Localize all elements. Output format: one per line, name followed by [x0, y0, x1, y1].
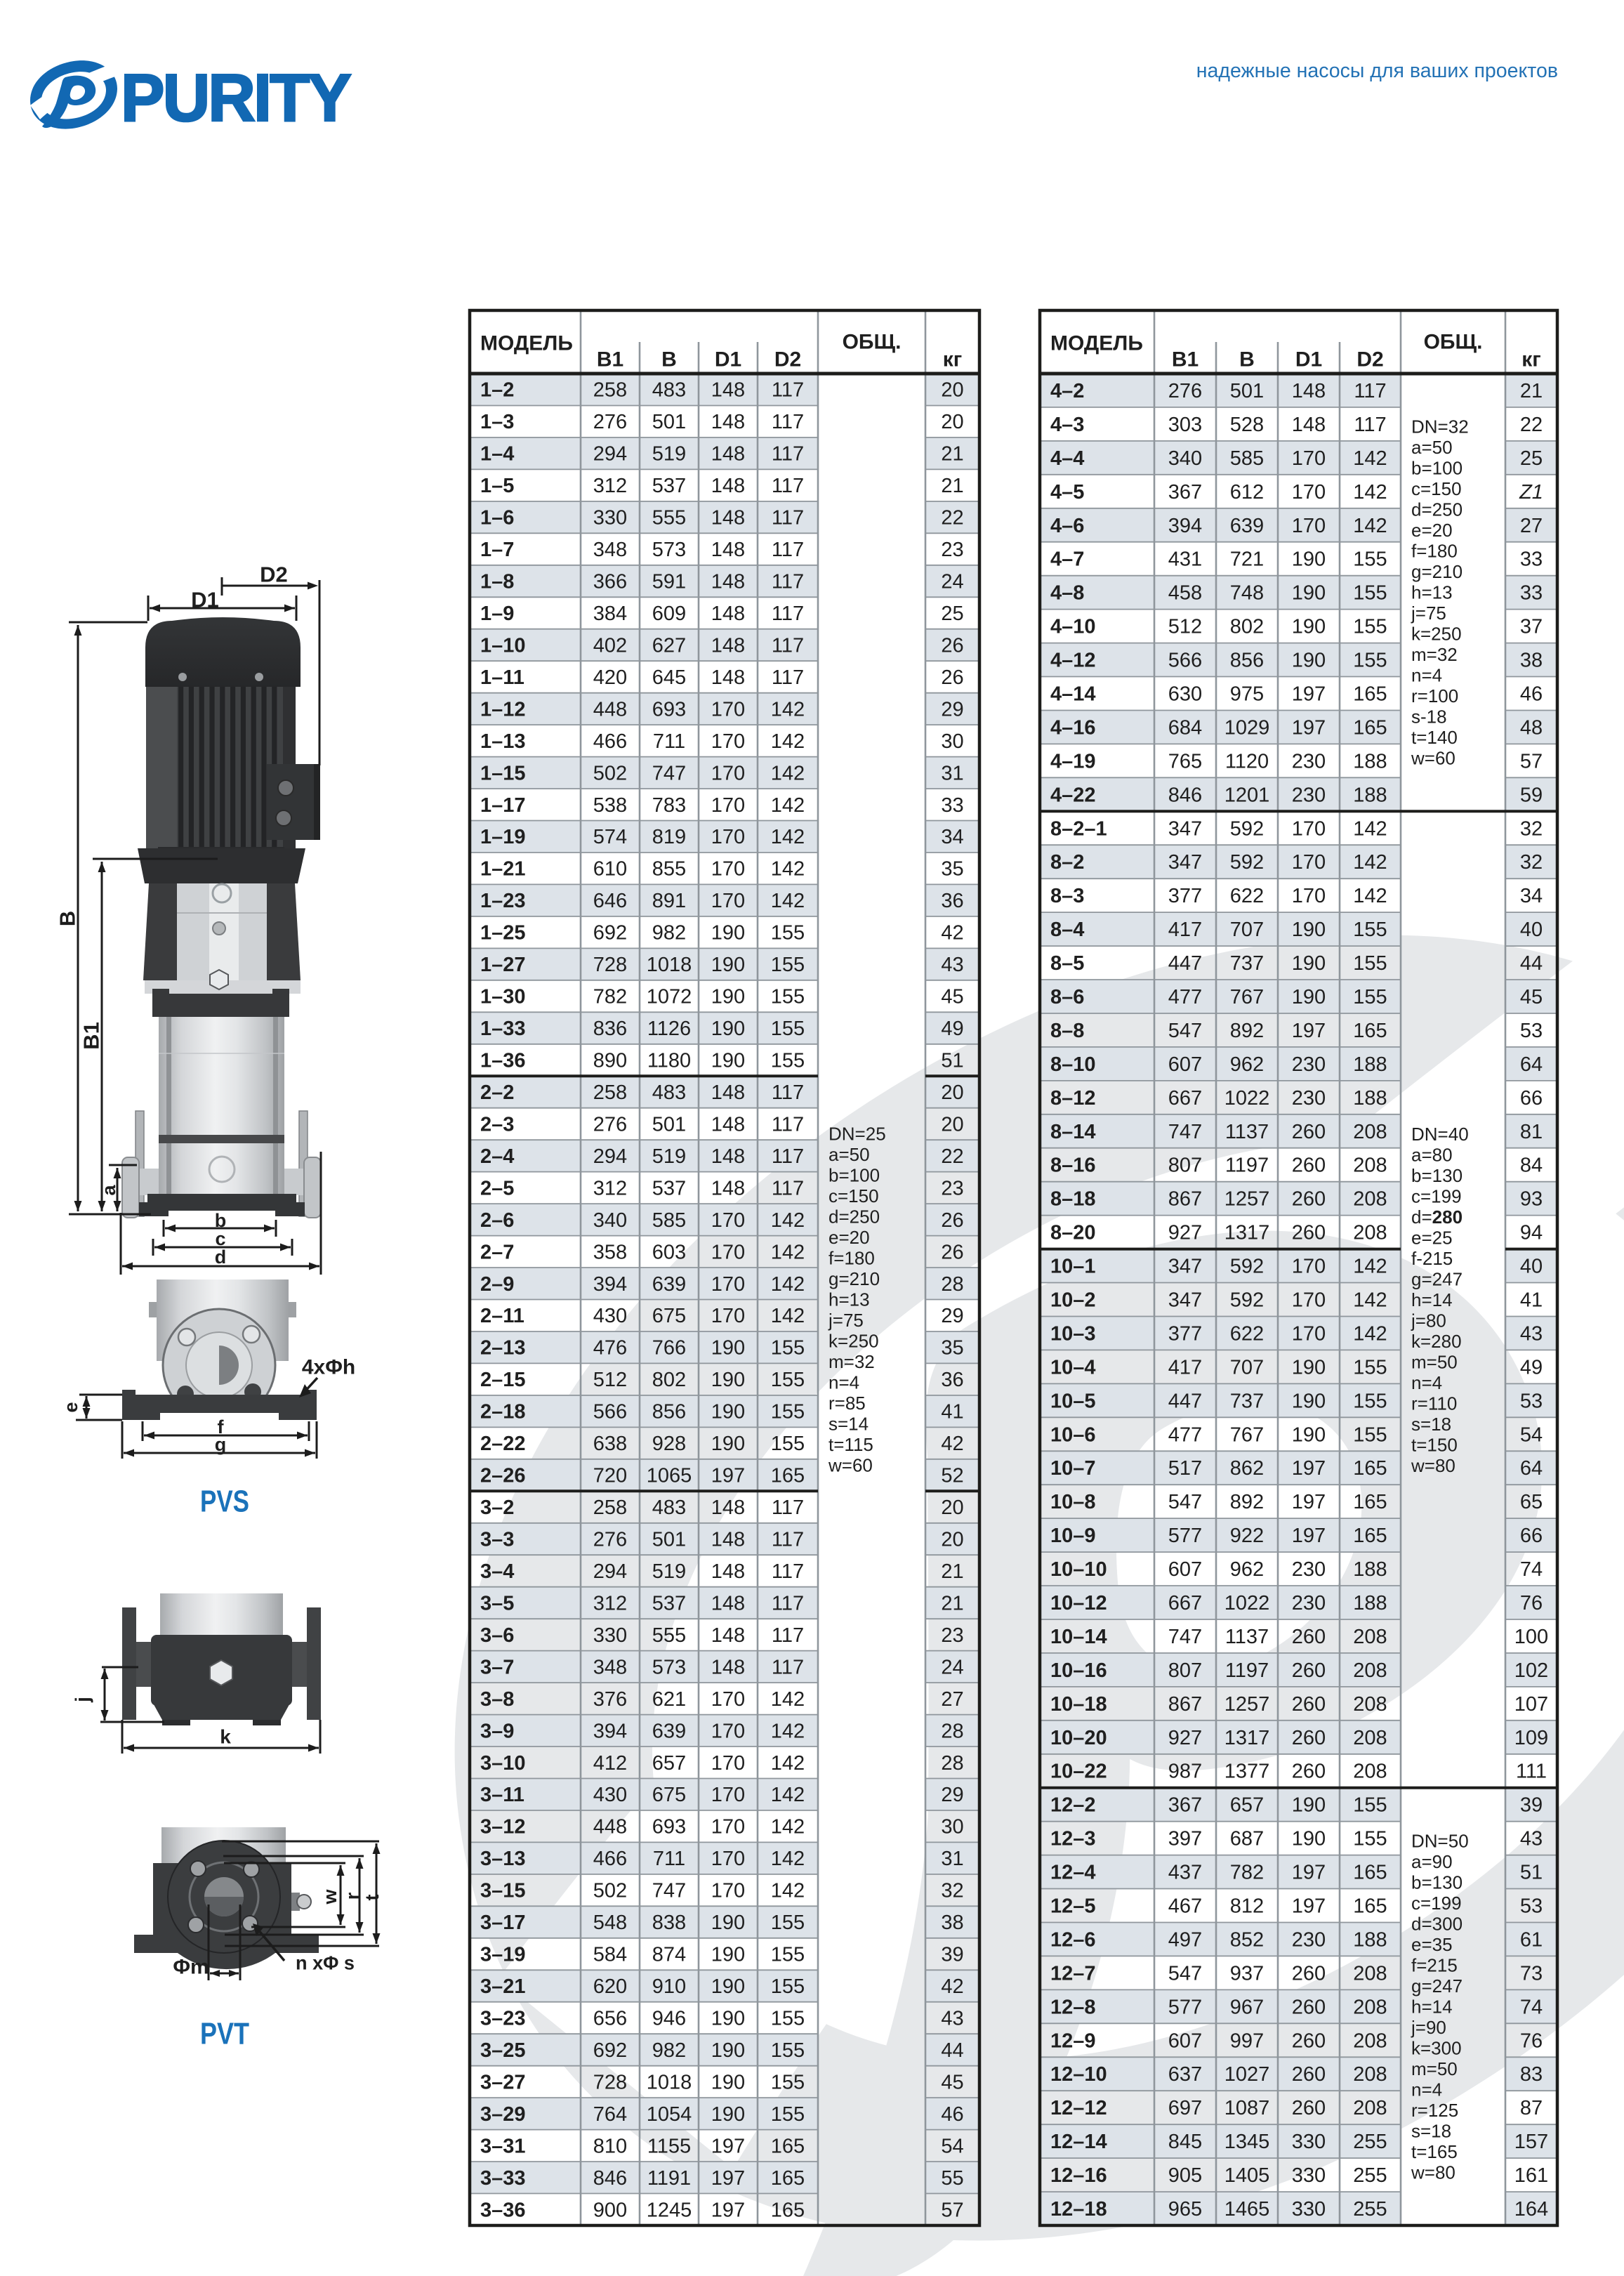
svg-text:190: 190 — [711, 1401, 745, 1423]
svg-text:n=4: n=4 — [828, 1372, 859, 1393]
svg-text:1072: 1072 — [647, 986, 692, 1008]
svg-text:h=13: h=13 — [828, 1289, 870, 1310]
svg-text:294: 294 — [593, 1560, 627, 1583]
svg-text:142: 142 — [1353, 1256, 1387, 1278]
svg-text:117: 117 — [772, 379, 804, 402]
svg-text:65: 65 — [1520, 1491, 1543, 1513]
svg-text:190: 190 — [711, 1975, 745, 1998]
svg-text:155: 155 — [771, 2071, 805, 2093]
svg-text:142: 142 — [1353, 1289, 1387, 1312]
svg-text:20: 20 — [941, 1496, 963, 1519]
svg-text:10–5: 10–5 — [1050, 1390, 1096, 1412]
svg-text:1465: 1465 — [1224, 2198, 1270, 2221]
svg-text:45: 45 — [1520, 986, 1543, 1008]
svg-text:1–2: 1–2 — [480, 379, 514, 402]
svg-text:26: 26 — [941, 1241, 963, 1263]
svg-text:962: 962 — [1230, 1053, 1264, 1076]
svg-text:e=20: e=20 — [828, 1227, 870, 1248]
svg-text:44: 44 — [941, 2039, 963, 2062]
svg-text:1–36: 1–36 — [480, 1050, 526, 1072]
svg-text:208: 208 — [1353, 2097, 1387, 2119]
svg-text:1–33: 1–33 — [480, 1018, 526, 1040]
svg-text:260: 260 — [1292, 1222, 1326, 1244]
svg-text:3–17: 3–17 — [480, 1912, 526, 1934]
svg-text:1257: 1257 — [1224, 1188, 1270, 1211]
svg-text:12–5: 12–5 — [1050, 1895, 1096, 1918]
svg-text:m=32: m=32 — [828, 1351, 875, 1372]
svg-text:170: 170 — [711, 698, 745, 721]
svg-text:w=60: w=60 — [828, 1455, 873, 1476]
svg-text:DN=32: DN=32 — [1411, 416, 1469, 438]
svg-text:165: 165 — [1353, 1491, 1387, 1513]
svg-text:142: 142 — [771, 1305, 805, 1327]
svg-text:142: 142 — [771, 698, 805, 721]
svg-text:584: 584 — [593, 1944, 627, 1966]
svg-text:74: 74 — [1520, 1558, 1543, 1581]
svg-text:r=110: r=110 — [1411, 1393, 1457, 1414]
svg-text:165: 165 — [771, 2167, 805, 2190]
svg-text:8–8: 8–8 — [1050, 1020, 1084, 1042]
svg-text:12–12: 12–12 — [1050, 2097, 1107, 2119]
svg-text:54: 54 — [941, 2135, 963, 2157]
svg-text:891: 891 — [652, 890, 686, 912]
svg-text:190: 190 — [711, 986, 745, 1008]
svg-text:8–3: 8–3 — [1050, 885, 1084, 907]
svg-text:26: 26 — [941, 666, 963, 689]
svg-text:630: 630 — [1168, 683, 1202, 706]
svg-text:190: 190 — [711, 2039, 745, 2062]
svg-text:12–3: 12–3 — [1050, 1828, 1096, 1850]
svg-text:142: 142 — [1353, 481, 1387, 504]
svg-text:117: 117 — [772, 443, 804, 466]
svg-text:155: 155 — [771, 2039, 805, 2062]
svg-text:117: 117 — [772, 635, 804, 657]
svg-text:260: 260 — [1292, 1761, 1326, 1783]
svg-text:57: 57 — [1520, 750, 1543, 772]
svg-text:1022: 1022 — [1224, 1592, 1270, 1614]
svg-text:21: 21 — [941, 475, 963, 497]
svg-text:537: 537 — [652, 1177, 686, 1199]
svg-text:555: 555 — [652, 1624, 686, 1647]
svg-text:170: 170 — [711, 1273, 745, 1296]
svg-text:846: 846 — [1168, 784, 1202, 806]
svg-text:258: 258 — [593, 379, 627, 402]
svg-text:155: 155 — [771, 1944, 805, 1966]
svg-text:e=25: e=25 — [1411, 1227, 1453, 1248]
svg-text:347: 347 — [1168, 1289, 1202, 1312]
svg-text:МОДЕЛЬ: МОДЕЛЬ — [1050, 332, 1143, 355]
svg-text:366: 366 — [593, 571, 627, 593]
svg-text:54: 54 — [1520, 1423, 1543, 1446]
svg-text:312: 312 — [593, 1177, 627, 1199]
svg-text:37: 37 — [1520, 616, 1543, 638]
svg-text:621: 621 — [652, 1688, 686, 1711]
svg-text:657: 657 — [652, 1752, 686, 1775]
svg-text:46: 46 — [941, 2103, 963, 2126]
svg-text:412: 412 — [593, 1752, 627, 1775]
svg-text:4–12: 4–12 — [1050, 650, 1096, 672]
svg-text:n=4: n=4 — [1411, 1372, 1442, 1393]
svg-text:737: 737 — [1230, 1390, 1264, 1412]
svg-text:33: 33 — [1520, 582, 1543, 605]
svg-text:188: 188 — [1353, 1592, 1387, 1614]
svg-text:622: 622 — [1230, 1322, 1264, 1345]
svg-text:148: 148 — [711, 507, 745, 529]
svg-text:892: 892 — [1230, 1020, 1264, 1042]
svg-text:512: 512 — [1168, 616, 1202, 638]
svg-text:8–5: 8–5 — [1050, 952, 1084, 975]
svg-text:23: 23 — [941, 1624, 963, 1647]
svg-text:53: 53 — [1520, 1390, 1543, 1412]
svg-text:27: 27 — [941, 1688, 963, 1711]
svg-text:312: 312 — [593, 1592, 627, 1614]
svg-text:170: 170 — [711, 858, 745, 881]
svg-text:420: 420 — [593, 666, 627, 689]
svg-text:1–11: 1–11 — [480, 666, 524, 689]
svg-text:190: 190 — [711, 1018, 745, 1040]
svg-text:720: 720 — [593, 1465, 627, 1487]
svg-text:255: 255 — [1353, 2164, 1387, 2187]
svg-text:32: 32 — [1520, 851, 1543, 874]
svg-text:b=100: b=100 — [1411, 458, 1463, 479]
svg-text:330: 330 — [1292, 2198, 1326, 2221]
svg-text:190: 190 — [711, 1050, 745, 1072]
svg-text:170: 170 — [711, 1848, 745, 1870]
svg-text:161: 161 — [1514, 2164, 1548, 2187]
svg-text:867: 867 — [1168, 1693, 1202, 1716]
svg-text:4–8: 4–8 — [1050, 582, 1084, 605]
svg-text:547: 547 — [1168, 1020, 1202, 1042]
svg-text:1027: 1027 — [1224, 2063, 1270, 2086]
svg-text:33: 33 — [941, 794, 963, 817]
svg-text:30: 30 — [941, 1816, 963, 1838]
svg-text:148: 148 — [711, 1624, 745, 1647]
svg-text:142: 142 — [1353, 885, 1387, 907]
svg-text:197: 197 — [1292, 1020, 1326, 1042]
svg-text:1180: 1180 — [647, 1050, 691, 1072]
svg-text:303: 303 — [1168, 414, 1202, 436]
svg-text:258: 258 — [593, 1496, 627, 1519]
svg-text:8–20: 8–20 — [1050, 1222, 1096, 1244]
svg-text:148: 148 — [711, 666, 745, 689]
svg-text:155: 155 — [771, 1401, 805, 1423]
svg-text:142: 142 — [1353, 447, 1387, 470]
svg-text:165: 165 — [1353, 716, 1387, 739]
svg-text:591: 591 — [652, 571, 686, 593]
svg-text:197: 197 — [1292, 1862, 1326, 1884]
svg-text:767: 767 — [1230, 1423, 1264, 1446]
svg-text:188: 188 — [1353, 1087, 1387, 1110]
svg-text:155: 155 — [771, 922, 805, 945]
svg-text:1–10: 1–10 — [480, 635, 526, 657]
svg-text:197: 197 — [1292, 1895, 1326, 1918]
svg-text:3–15: 3–15 — [480, 1880, 526, 1902]
svg-text:B: B — [661, 348, 677, 371]
svg-text:1–25: 1–25 — [480, 922, 526, 945]
svg-text:155: 155 — [1353, 616, 1387, 638]
svg-text:1–19: 1–19 — [480, 826, 526, 848]
svg-text:43: 43 — [941, 954, 963, 976]
svg-text:ОБЩ.: ОБЩ. — [843, 331, 902, 354]
svg-text:3–4: 3–4 — [480, 1560, 514, 1583]
svg-text:376: 376 — [593, 1688, 627, 1711]
svg-text:8–10: 8–10 — [1050, 1053, 1096, 1076]
svg-text:10–9: 10–9 — [1050, 1525, 1096, 1547]
svg-text:148: 148 — [711, 1529, 745, 1551]
svg-text:73: 73 — [1520, 1962, 1543, 1985]
svg-text:928: 928 — [652, 1433, 686, 1455]
svg-text:142: 142 — [771, 1688, 805, 1711]
svg-text:260: 260 — [1292, 2030, 1326, 2052]
svg-text:1126: 1126 — [647, 1018, 691, 1040]
svg-text:12–4: 12–4 — [1050, 1862, 1096, 1884]
svg-text:905: 905 — [1168, 2164, 1202, 2187]
svg-text:148: 148 — [711, 443, 745, 466]
svg-text:260: 260 — [1292, 2063, 1326, 2086]
svg-text:155: 155 — [771, 954, 805, 976]
svg-text:8–2–1: 8–2–1 — [1050, 817, 1107, 840]
svg-text:585: 585 — [1230, 447, 1264, 470]
svg-text:170: 170 — [711, 1305, 745, 1327]
svg-text:111: 111 — [1516, 1761, 1547, 1783]
svg-text:548: 548 — [593, 1912, 627, 1934]
svg-text:1–5: 1–5 — [480, 475, 514, 497]
svg-text:667: 667 — [1168, 1592, 1202, 1614]
svg-text:3–10: 3–10 — [480, 1752, 526, 1775]
svg-text:a=90: a=90 — [1411, 1851, 1453, 1872]
svg-text:330: 330 — [1292, 2164, 1326, 2187]
svg-text:260: 260 — [1292, 1155, 1326, 1177]
svg-text:155: 155 — [771, 1337, 805, 1360]
svg-text:PURITY: PURITY — [121, 60, 351, 136]
svg-text:155: 155 — [1353, 986, 1387, 1008]
svg-text:639: 639 — [1230, 515, 1264, 537]
svg-text:165: 165 — [1353, 1525, 1387, 1547]
svg-text:53: 53 — [1520, 1895, 1543, 1918]
svg-text:94: 94 — [1520, 1222, 1543, 1244]
svg-text:148: 148 — [711, 1177, 745, 1199]
svg-text:477: 477 — [1168, 1423, 1202, 1446]
svg-text:519: 519 — [652, 1145, 686, 1168]
svg-text:165: 165 — [1353, 1457, 1387, 1480]
svg-text:8–16: 8–16 — [1050, 1155, 1096, 1177]
svg-text:23: 23 — [941, 1177, 963, 1199]
svg-text:802: 802 — [652, 1369, 686, 1391]
svg-text:m=32: m=32 — [1411, 644, 1458, 665]
svg-text:D2: D2 — [774, 348, 801, 371]
svg-text:2–2: 2–2 — [480, 1081, 514, 1104]
svg-text:1405: 1405 — [1224, 2164, 1270, 2187]
svg-text:81: 81 — [1520, 1121, 1543, 1143]
svg-text:32: 32 — [941, 1880, 963, 1902]
svg-text:c=199: c=199 — [1411, 1185, 1462, 1206]
svg-text:260: 260 — [1292, 1962, 1326, 1985]
svg-text:DN=50: DN=50 — [1411, 1831, 1469, 1852]
svg-text:165: 165 — [1353, 1895, 1387, 1918]
svg-text:946: 946 — [652, 2008, 686, 2030]
svg-text:b=130: b=130 — [1411, 1872, 1463, 1893]
svg-text:197: 197 — [1292, 1457, 1326, 1480]
svg-text:2–11: 2–11 — [480, 1305, 524, 1327]
svg-text:155: 155 — [1353, 582, 1387, 605]
svg-text:10–2: 10–2 — [1050, 1289, 1096, 1312]
svg-text:117: 117 — [772, 1496, 804, 1519]
svg-text:117: 117 — [772, 475, 804, 497]
svg-text:10–10: 10–10 — [1050, 1558, 1107, 1581]
svg-text:155: 155 — [771, 1912, 805, 1934]
svg-text:208: 208 — [1353, 1155, 1387, 1177]
svg-text:170: 170 — [1292, 1289, 1326, 1312]
svg-text:622: 622 — [1230, 885, 1264, 907]
svg-text:155: 155 — [771, 2008, 805, 2030]
svg-text:190: 190 — [1292, 548, 1326, 571]
svg-text:117: 117 — [772, 1656, 804, 1678]
svg-text:782: 782 — [593, 986, 627, 1008]
svg-text:B: B — [1239, 348, 1255, 371]
svg-text:190: 190 — [711, 922, 745, 945]
svg-text:d=280: d=280 — [1411, 1206, 1463, 1228]
svg-text:g=247: g=247 — [1411, 1975, 1463, 1997]
svg-text:f=180: f=180 — [828, 1248, 875, 1269]
svg-text:21: 21 — [941, 443, 963, 466]
svg-text:294: 294 — [593, 1145, 627, 1168]
svg-text:r=125: r=125 — [1411, 2100, 1458, 2121]
svg-text:607: 607 — [1168, 2030, 1202, 2052]
svg-text:1–30: 1–30 — [480, 986, 526, 1008]
svg-text:855: 855 — [652, 858, 686, 881]
svg-text:53: 53 — [1520, 1020, 1543, 1042]
svg-text:107: 107 — [1514, 1693, 1548, 1716]
svg-text:12–9: 12–9 — [1050, 2030, 1096, 2052]
svg-text:k=250: k=250 — [828, 1331, 879, 1352]
svg-text:e: e — [60, 1402, 81, 1412]
svg-text:276: 276 — [593, 1529, 627, 1551]
svg-text:639: 639 — [652, 1273, 686, 1296]
svg-text:260: 260 — [1292, 1626, 1326, 1648]
svg-text:208: 208 — [1353, 1626, 1387, 1648]
svg-text:c=150: c=150 — [828, 1185, 879, 1206]
svg-text:170: 170 — [711, 1816, 745, 1838]
svg-text:20: 20 — [941, 411, 963, 433]
svg-text:502: 502 — [593, 1880, 627, 1902]
svg-text:2–26: 2–26 — [480, 1465, 526, 1487]
svg-text:764: 764 — [593, 2103, 627, 2126]
svg-text:208: 208 — [1353, 1693, 1387, 1716]
svg-text:10–18: 10–18 — [1050, 1693, 1107, 1716]
svg-text:51: 51 — [941, 1050, 963, 1072]
svg-text:25: 25 — [1520, 447, 1543, 470]
svg-text:29: 29 — [941, 698, 963, 721]
svg-text:165: 165 — [771, 2199, 805, 2221]
svg-text:51: 51 — [1520, 1862, 1543, 1884]
svg-text:1191: 1191 — [647, 2167, 691, 2190]
svg-text:1029: 1029 — [1224, 716, 1270, 739]
svg-text:31: 31 — [941, 1848, 963, 1870]
svg-text:10–16: 10–16 — [1050, 1659, 1107, 1682]
svg-text:c=199: c=199 — [1411, 1893, 1462, 1914]
svg-text:260: 260 — [1292, 1996, 1326, 2018]
svg-text:466: 466 — [593, 1848, 627, 1870]
svg-text:155: 155 — [1353, 919, 1387, 941]
svg-text:1317: 1317 — [1224, 1222, 1270, 1244]
svg-text:j=75: j=75 — [1411, 603, 1446, 624]
svg-text:997: 997 — [1230, 2030, 1264, 2052]
svg-text:170: 170 — [711, 1688, 745, 1711]
svg-text:w=80: w=80 — [1411, 1455, 1455, 1476]
svg-text:367: 367 — [1168, 481, 1202, 504]
svg-text:612: 612 — [1230, 481, 1264, 504]
svg-text:347: 347 — [1168, 817, 1202, 840]
svg-text:3–33: 3–33 — [480, 2167, 526, 2190]
svg-text:197: 197 — [711, 1465, 745, 1487]
svg-text:448: 448 — [593, 1816, 627, 1838]
svg-text:DN=40: DN=40 — [1411, 1124, 1469, 1145]
svg-text:874: 874 — [652, 1944, 686, 1966]
svg-text:148: 148 — [1292, 414, 1326, 436]
svg-text:466: 466 — [593, 730, 627, 753]
svg-text:t: t — [362, 1895, 383, 1901]
svg-text:927: 927 — [1168, 1727, 1202, 1749]
svg-text:155: 155 — [1353, 1794, 1387, 1817]
svg-text:592: 592 — [1230, 851, 1264, 874]
svg-text:188: 188 — [1353, 1558, 1387, 1581]
svg-text:447: 447 — [1168, 952, 1202, 975]
svg-text:190: 190 — [1292, 986, 1326, 1008]
svg-text:155: 155 — [771, 1018, 805, 1040]
svg-text:358: 358 — [593, 1241, 627, 1263]
svg-text:170: 170 — [711, 890, 745, 912]
svg-text:170: 170 — [1292, 447, 1326, 470]
svg-text:j=80: j=80 — [1411, 1310, 1446, 1331]
svg-text:208: 208 — [1353, 1121, 1387, 1143]
svg-text:59: 59 — [1520, 784, 1543, 806]
svg-text:117: 117 — [1354, 414, 1386, 436]
svg-text:76: 76 — [1520, 2030, 1543, 2052]
svg-text:4–22: 4–22 — [1050, 784, 1096, 806]
svg-text:603: 603 — [652, 1241, 686, 1263]
svg-text:512: 512 — [593, 1369, 627, 1391]
svg-text:10–12: 10–12 — [1050, 1592, 1107, 1614]
svg-text:10–7: 10–7 — [1050, 1457, 1096, 1480]
svg-text:197: 197 — [1292, 716, 1326, 739]
svg-text:142: 142 — [771, 1816, 805, 1838]
svg-text:547: 547 — [1168, 1491, 1202, 1513]
svg-text:142: 142 — [1353, 515, 1387, 537]
svg-text:367: 367 — [1168, 1794, 1202, 1817]
svg-text:528: 528 — [1230, 414, 1264, 436]
svg-text:1065: 1065 — [647, 1465, 692, 1487]
svg-text:4–16: 4–16 — [1050, 716, 1096, 739]
svg-text:38: 38 — [1520, 650, 1543, 672]
svg-text:10–22: 10–22 — [1050, 1761, 1107, 1783]
svg-text:148: 148 — [711, 635, 745, 657]
svg-text:707: 707 — [1230, 919, 1264, 941]
svg-text:637: 637 — [1168, 2063, 1202, 2086]
svg-text:10–4: 10–4 — [1050, 1356, 1096, 1379]
svg-text:8–2: 8–2 — [1050, 851, 1084, 874]
svg-text:36: 36 — [941, 1369, 963, 1391]
svg-text:627: 627 — [652, 635, 686, 657]
svg-text:117: 117 — [772, 1177, 804, 1199]
svg-text:188: 188 — [1353, 1929, 1387, 1952]
svg-text:142: 142 — [1353, 817, 1387, 840]
svg-text:w=80: w=80 — [1411, 2162, 1455, 2183]
svg-text:35: 35 — [941, 858, 963, 881]
svg-text:276: 276 — [593, 1113, 627, 1136]
svg-text:1022: 1022 — [1224, 1087, 1270, 1110]
svg-text:347: 347 — [1168, 1256, 1202, 1278]
svg-text:448: 448 — [593, 698, 627, 721]
